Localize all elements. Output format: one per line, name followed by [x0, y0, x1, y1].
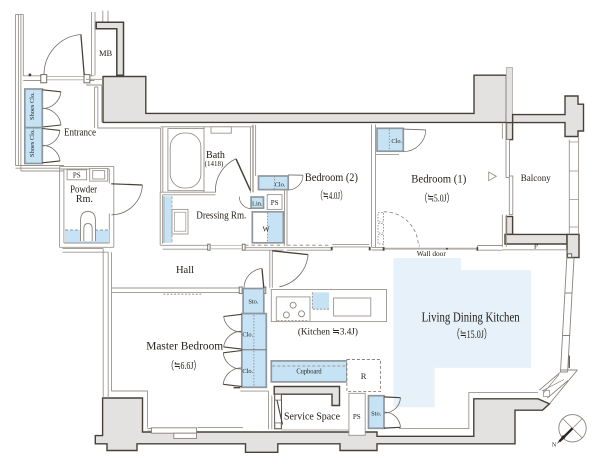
svg-text:（≒6.6J）: （≒6.6J） — [166, 359, 201, 372]
svg-text:Sto.: Sto. — [248, 299, 259, 306]
svg-text:(1418): (1418) — [205, 160, 224, 168]
svg-text:（≒4.0J）: （≒4.0J） — [316, 189, 347, 202]
svg-text:Rm.: Rm. — [76, 194, 93, 205]
svg-text:Clo.: Clo. — [242, 332, 253, 339]
svg-text:Living Dining Kitchen: Living Dining Kitchen — [422, 310, 520, 325]
svg-text:R: R — [361, 371, 367, 381]
svg-text:N: N — [552, 443, 557, 449]
svg-text:Service Space: Service Space — [284, 412, 340, 423]
svg-text:Wall door: Wall door — [417, 251, 447, 258]
svg-text:Clo.: Clo. — [275, 181, 286, 188]
svg-text:Lin.: Lin. — [252, 200, 263, 207]
svg-text:PS: PS — [271, 199, 279, 207]
svg-text:P: P — [534, 243, 538, 251]
svg-text:Bedroom (2): Bedroom (2) — [305, 170, 358, 184]
svg-text:Entrance: Entrance — [64, 128, 96, 139]
svg-text:Cupboard: Cupboard — [296, 367, 322, 375]
svg-text:W: W — [262, 225, 270, 234]
svg-text:Bedroom (1): Bedroom (1) — [411, 172, 466, 186]
svg-text:Shoes Clo.: Shoes Clo. — [29, 92, 36, 120]
svg-text:（≒15.0J）: （≒15.0J） — [452, 327, 492, 341]
svg-text:(Kitchen ≒3.4J): (Kitchen ≒3.4J) — [298, 326, 358, 337]
svg-text:PS: PS — [73, 172, 81, 180]
svg-text:PS: PS — [353, 413, 361, 421]
svg-text:Master Bedroom: Master Bedroom — [146, 339, 224, 353]
svg-text:Clo.: Clo. — [391, 138, 402, 145]
svg-text:Balcony: Balcony — [521, 174, 551, 184]
svg-text:Sto.: Sto. — [371, 411, 382, 418]
svg-text:Clo.: Clo. — [242, 368, 253, 375]
svg-text:Hall: Hall — [176, 265, 194, 276]
svg-text:Shoes Clo.: Shoes Clo. — [29, 129, 36, 157]
svg-text:MB: MB — [99, 48, 113, 58]
svg-text:Dressing Rm.: Dressing Rm. — [196, 210, 246, 221]
svg-text:（≒5.0J）: （≒5.0J） — [420, 192, 455, 205]
